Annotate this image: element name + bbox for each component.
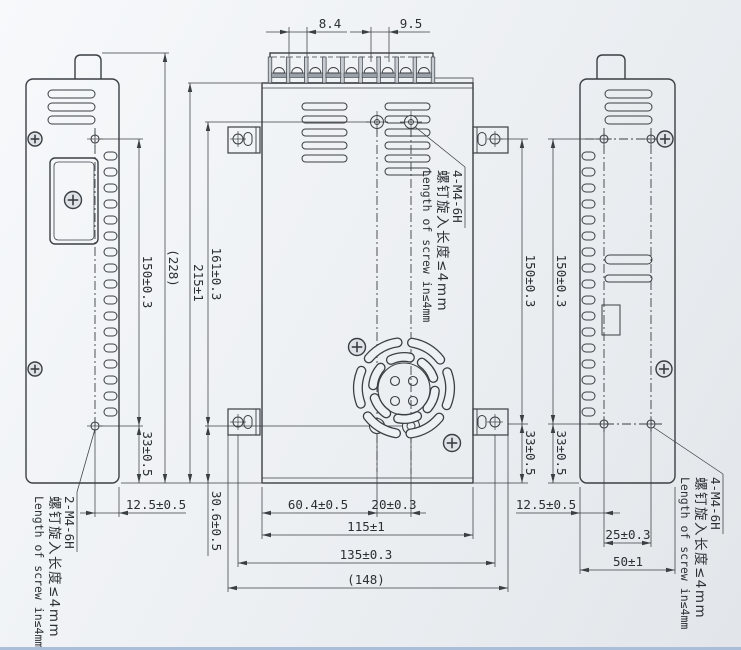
dim-fan-screw-pitch: 20±0.3: [371, 497, 416, 512]
dim-right-depth: 50±1: [613, 554, 643, 569]
dim-ear-screw-span: 150±0.3: [523, 255, 538, 308]
right-view-terminal-boss: [597, 55, 625, 79]
note-left-en: Length of screw in≤4mm: [32, 496, 46, 648]
note-center-cn: 螺钉旋入长度≤4mm: [434, 170, 450, 312]
dim-terminal-pitch: 9.5: [400, 16, 423, 31]
dim-overall-width: (148): [347, 572, 385, 587]
dim-right-foot-height: 33±0.5: [554, 430, 569, 475]
note-right-en: Length of screw in≤4mm: [678, 477, 692, 629]
dim-ear-foot-height: 33±0.5: [523, 430, 538, 475]
note-center-en: Length of screw in≤4mm: [420, 170, 434, 322]
dim-ear-hole-span: 135±0.3: [340, 547, 393, 562]
dim-screw-to-bottom: 30.6±0.5: [209, 491, 224, 551]
dim-left-foot-height: 33±0.5: [140, 431, 155, 476]
dim-right-screw-pitch: 25±0.3: [605, 527, 650, 542]
dim-left-screw-span: 150±0.3: [140, 256, 155, 309]
dim-right-screw-inset: 12.5±0.5: [516, 497, 576, 512]
engineering-drawing: 8.4 9.5 60.4±0.5 20±0.3 115±1 135±0.3 (1…: [0, 0, 741, 650]
dim-fan-screw-offset: 60.4±0.5: [288, 497, 348, 512]
dim-right-screw-span: 150±0.3: [554, 255, 569, 308]
power-switch: [602, 305, 620, 335]
dim-terminal-slot-width: 8.4: [319, 16, 342, 31]
note-center-title: 4-M4-6H: [450, 170, 465, 223]
dim-left-overall-height: (228): [166, 249, 181, 287]
note-left-cn: 螺钉旋入长度≤4mm: [46, 496, 62, 638]
left-view-terminal-boss: [75, 55, 101, 79]
dim-left-screw-inset: 12.5±0.5: [126, 497, 186, 512]
drawing-canvas: 8.4 9.5 60.4±0.5 20±0.3 115±1 135±0.3 (1…: [0, 0, 741, 650]
enclosure-views: [26, 53, 675, 483]
dim-case-width: 115±1: [347, 519, 385, 534]
dim-case-height: 215±1: [191, 264, 206, 302]
note-right-cn: 螺钉旋入长度≤4mm: [692, 477, 708, 619]
top-view-cover-lip: [432, 78, 473, 83]
dim-top-screw-span: 161±0.3: [209, 248, 224, 301]
note-right-title: 4-M4-6H: [708, 477, 723, 530]
note-left-title: 2-M4-6H: [62, 496, 77, 549]
